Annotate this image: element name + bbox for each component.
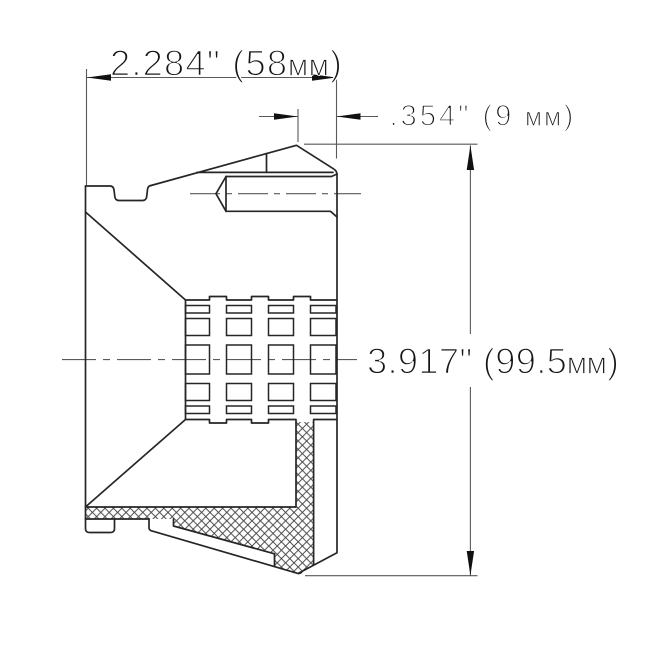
svg-text:.354" (9 MM): .354" (9 MM) (390, 100, 577, 133)
svg-text:3.917" (99.5MM): 3.917" (99.5MM) (367, 341, 619, 382)
svg-text:2.284" (58MM): 2.284" (58MM) (110, 43, 343, 84)
